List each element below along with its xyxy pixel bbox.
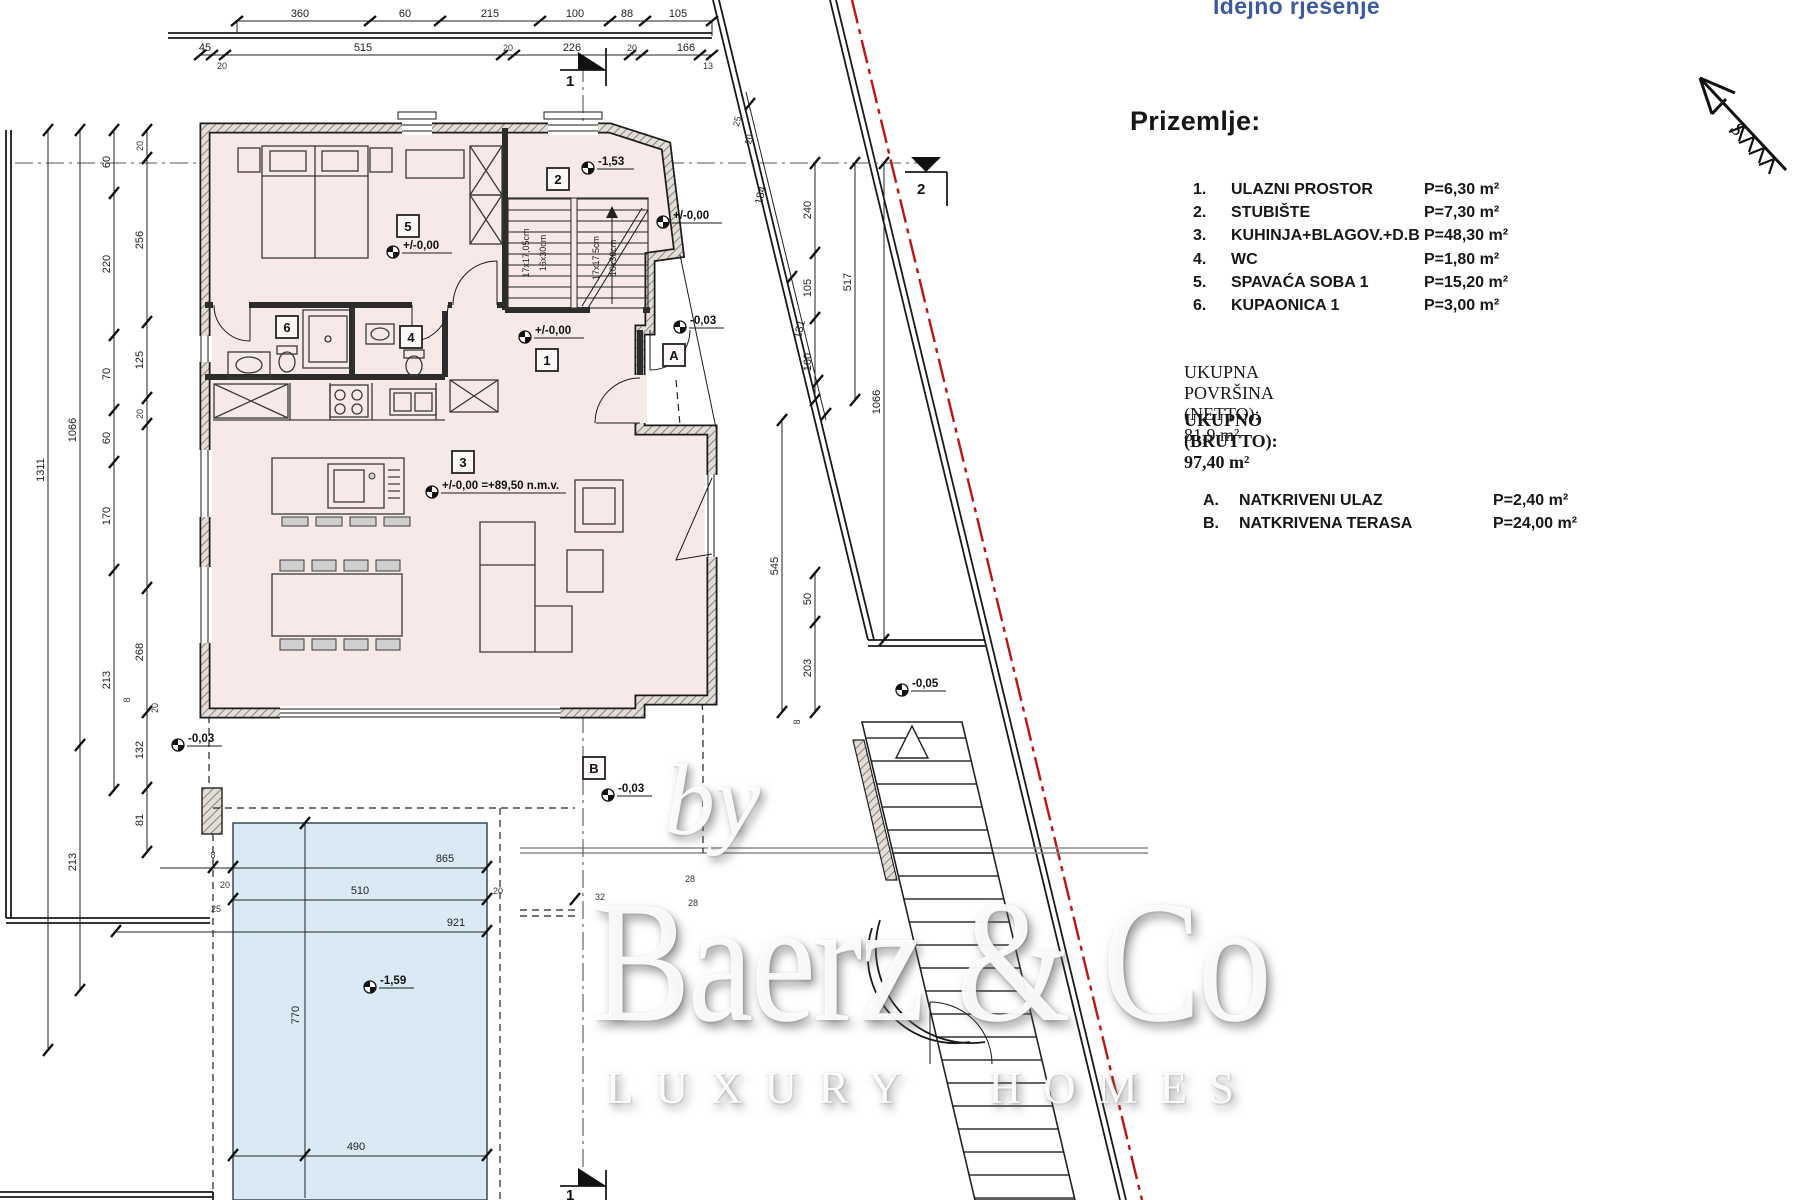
dim-label: 515: [354, 42, 372, 54]
annex-area: P=2,40 m²: [1493, 492, 1568, 510]
total-brutto: UKUPNO (BRUTTO): 97,40 m²: [1184, 410, 1278, 473]
elevation-label: -1,53: [598, 156, 624, 168]
dim-label: 213: [101, 671, 113, 689]
room-num: 2.: [1193, 204, 1206, 222]
external-staircase: [853, 722, 1075, 1200]
dim-label: 20: [217, 61, 227, 71]
room-num: 6.: [1193, 297, 1206, 315]
pool: [213, 808, 575, 1200]
room-area: P=7,30 m²: [1424, 204, 1499, 222]
dim-label: 70: [101, 368, 113, 380]
room-area: P=48,30 m²: [1424, 227, 1508, 245]
dim-label: 490: [347, 1141, 365, 1153]
dim-label: 1311: [35, 458, 47, 482]
legend-room-list: 1. ULAZNI PROSTOR P=6,30 m² 2. STUBIŠTE …: [1193, 181, 1553, 320]
dim-label: 770: [290, 1006, 302, 1024]
room-marker-2: 2: [554, 172, 561, 187]
room-name: SPAVAĆA SOBA 1: [1231, 274, 1369, 292]
dim-label: 20: [150, 703, 160, 713]
dim-label: 170: [101, 507, 113, 525]
dim-label: 105: [669, 8, 687, 20]
stair-note: 17x17,5cm: [591, 236, 601, 280]
room-num: 5.: [1193, 274, 1206, 292]
legend-row: 5. SPAVAĆA SOBA 1 P=15,20 m²: [1193, 274, 1553, 297]
dim-label: 60: [399, 8, 411, 20]
elevation-label: -0,03: [690, 315, 716, 327]
room-marker-4: 4: [407, 330, 415, 345]
dim-label: 60: [101, 432, 113, 444]
room-name: KUHINJA+BLAGOV.+D.B: [1231, 227, 1420, 245]
zone-marker-a: A: [669, 348, 679, 363]
annex-row: A. NATKRIVENI ULAZ P=2,40 m²: [1203, 492, 1603, 515]
dim-label: 81: [134, 814, 146, 826]
elevation-label: -0,05: [912, 678, 939, 690]
room-area: P=3,00 m²: [1424, 297, 1499, 315]
dim-label: 360: [291, 8, 309, 20]
dim-label: 1066: [67, 418, 79, 442]
legend-row: 3. KUHINJA+BLAGOV.+D.B P=48,30 m²: [1193, 227, 1553, 250]
room-num: 1.: [1193, 181, 1206, 199]
dim-label: 45: [199, 42, 211, 54]
dim-label: 220: [101, 255, 113, 273]
dim-label: 215: [481, 8, 499, 20]
dim-label: 203: [802, 659, 814, 677]
elevation-label: -1,59: [380, 975, 406, 987]
dim-label: 60: [101, 156, 113, 168]
elevation-label: +/-0,00: [535, 325, 571, 337]
room-name: WC: [1231, 251, 1258, 269]
north-label: S: [1726, 118, 1749, 140]
dim-label: 510: [351, 885, 369, 897]
dim-label: 20: [135, 409, 145, 419]
dim-label: 160: [802, 353, 814, 371]
dim-label: 20: [220, 880, 230, 890]
elevation-label: -0,03: [188, 733, 214, 745]
room-marker-5: 5: [404, 219, 411, 234]
dim-label: 28: [685, 874, 695, 884]
document-type-label: Idejno rješenje: [1213, 0, 1380, 20]
dim-label: 1066: [871, 390, 883, 414]
dim-label: 20: [627, 43, 637, 53]
legend-row: 6. KUPAONICA 1 P=3,00 m²: [1193, 297, 1553, 320]
dim-label: 8: [122, 697, 132, 702]
dim-label: 20: [135, 141, 145, 151]
room-num: 3.: [1193, 227, 1206, 245]
dim-label: 20: [493, 886, 503, 896]
legend-row: 4. WC P=1,80 m²: [1193, 251, 1553, 274]
floor-plan-canvas: 360 60 215 100 88 105 45 20 515 20 226 2…: [0, 0, 1800, 1200]
legend-row: 2. STUBIŠTE P=7,30 m²: [1193, 204, 1553, 227]
annex-row: B. NATKRIVENA TERASA P=24,00 m²: [1203, 515, 1603, 538]
dim-label: 865: [436, 853, 454, 865]
stair-note: 17x17,05cm: [521, 228, 531, 277]
dim-label: 226: [563, 42, 581, 54]
dim-label: 256: [134, 231, 146, 249]
dim-label: 28: [688, 898, 698, 908]
dim-label: 268: [134, 643, 146, 661]
legend-heading: Prizemlje:: [1130, 106, 1261, 137]
room-marker-1: 1: [543, 353, 550, 368]
elevation-label: +/-0,00: [403, 240, 439, 252]
room-marker-6: 6: [283, 320, 290, 335]
north-arrow-icon: S: [1700, 78, 1786, 174]
stair-note: 16x30cm: [538, 235, 548, 272]
dim-label: 213: [67, 853, 79, 871]
room-num: 4.: [1193, 251, 1206, 269]
dim-label: 105: [802, 279, 814, 297]
section-mark-1-top: 1: [566, 73, 574, 90]
room-area: P=15,20 m²: [1424, 274, 1508, 292]
room-name: STUBIŠTE: [1231, 204, 1310, 222]
room-area: P=1,80 m²: [1424, 251, 1499, 269]
dim-label: 166: [677, 42, 695, 54]
room-area: P=6,30 m²: [1424, 181, 1499, 199]
zone-marker-b: B: [589, 761, 598, 776]
dim-label: 132: [134, 741, 146, 759]
dim-label: 545: [769, 557, 781, 575]
dim-label: 184: [753, 185, 769, 206]
stair-note: 16x30cm: [608, 240, 618, 277]
dim-label: 8: [792, 719, 802, 724]
annex-name: NATKRIVENA TERASA: [1239, 515, 1412, 533]
dim-label: 13: [703, 61, 713, 71]
section-mark-1-bottom: 1: [566, 1187, 574, 1200]
dim-label: 125: [134, 351, 146, 369]
room-name: ULAZNI PROSTOR: [1231, 181, 1373, 199]
dim-label: 517: [842, 273, 854, 291]
elevation-label: +/-0,00 =+89,50 n.m.v.: [442, 480, 559, 492]
dim-label: 20: [503, 43, 513, 53]
dim-label: 25: [211, 904, 221, 914]
annex-name: NATKRIVENI ULAZ: [1239, 492, 1383, 510]
dim-label: 921: [447, 917, 465, 929]
dim-label: 240: [802, 201, 814, 219]
dim-label: 100: [566, 8, 584, 20]
annex-num: A.: [1203, 492, 1219, 510]
room-name: KUPAONICA 1: [1231, 297, 1339, 315]
annex-num: B.: [1203, 515, 1219, 533]
legend-row: 1. ULAZNI PROSTOR P=6,30 m²: [1193, 181, 1553, 204]
elevation-label: -0,03: [618, 783, 644, 795]
dim-label: 50: [802, 593, 814, 605]
dim-label: 88: [621, 8, 633, 20]
section-mark-2: 2: [917, 181, 925, 198]
elevation-label: +/-0,00: [673, 210, 709, 222]
legend-annex-list: A. NATKRIVENI ULAZ P=2,40 m² B. NATKRIVE…: [1203, 492, 1603, 538]
floorplan-sheet: 360 60 215 100 88 105 45 20 515 20 226 2…: [0, 0, 1800, 1200]
dim-label: 32: [595, 892, 605, 902]
annex-area: P=24,00 m²: [1493, 515, 1577, 533]
dim-label: 8: [210, 850, 215, 860]
room-marker-3: 3: [459, 455, 466, 470]
